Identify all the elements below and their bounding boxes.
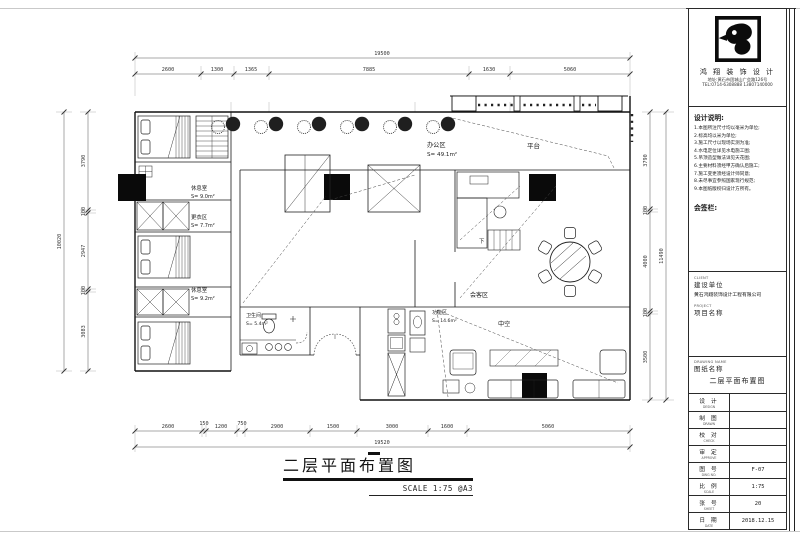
dim-label: 2600 — [162, 424, 175, 430]
room-label: 休息室 — [191, 184, 208, 192]
table-label-cell: 制 图DRAWN — [689, 411, 729, 428]
room-label: 卫生间 — [246, 312, 261, 319]
room-label: S= 9.0m² — [191, 194, 215, 200]
table-label-cell: 比 例SCALE — [689, 478, 729, 495]
note-line: 7.施工变更须经设计师同意; — [694, 171, 781, 179]
dim-label: 1500 — [327, 424, 340, 430]
stair-top-left — [196, 116, 228, 158]
dim-label: 5060 — [542, 424, 555, 430]
note-line: 9.本图纸版权归设计方所有。 — [694, 186, 781, 194]
table-value-cell — [729, 445, 786, 462]
room-label: S= 14.6m² — [432, 318, 457, 324]
note-line: 1.本图所注尺寸均以毫米为单位; — [694, 125, 781, 133]
dim-label: 750 — [237, 421, 246, 427]
room-label: S= 9.2m² — [191, 296, 215, 302]
drawing-name-label: 图纸名称 — [694, 364, 781, 373]
dim-label: 5060 — [564, 67, 577, 73]
dim-label: 4000 — [643, 255, 649, 268]
room-label: 功能区 — [432, 309, 447, 316]
room-label: 休息室 — [191, 286, 208, 294]
drawing-name-section: DRAWING NAME 图纸名称 二层平面布置图 — [689, 357, 786, 394]
sign-off-heading: 会签栏: — [694, 202, 781, 212]
dim-label: 100 — [81, 207, 87, 216]
note-line: 8.未尽事宜参照国家现行规范; — [694, 178, 781, 186]
bathroom-fixtures — [240, 314, 307, 354]
table-label-cell: 图 号DWG NO. — [689, 462, 729, 479]
plants-row — [212, 117, 456, 134]
table-value-cell: F-07 — [729, 462, 786, 479]
dim-label: 7885 — [363, 67, 376, 73]
room-label: S= 49.1m² — [427, 151, 457, 158]
dim-label: 1600 — [441, 424, 454, 430]
design-notes-section: 设计说明: 1.本图所注尺寸均以毫米为单位; 2.标高均以米为单位; 3.施工尺… — [689, 107, 786, 272]
client-value: 黄石鸿翔装饰设计工程有限公司 — [694, 291, 781, 298]
room-label: 中空 — [498, 320, 510, 328]
drawing-title-block: 二层平面布置图 SCALE 1:75 @A3 — [283, 452, 473, 496]
drawing-title: 二层平面布置图 — [283, 452, 473, 476]
scale-underline — [369, 495, 473, 496]
title-block-logo-section: 鸿 翔 装 饰 设 计 地址:黄石市团城山广会路126号 TEL:0714-63… — [689, 9, 786, 107]
dim-label: 1200 — [215, 424, 228, 430]
drawing-sheet: 19500 2600 1300 1365 7885 1630 5060 2600… — [0, 0, 800, 539]
dim-label: 2947 — [81, 245, 87, 258]
dim-label: 100 — [81, 286, 87, 295]
dim-label: 3000 — [386, 424, 399, 430]
table-value-cell — [729, 394, 786, 411]
dim-label: 2900 — [271, 424, 284, 430]
project-label: 项目名称 — [694, 308, 781, 317]
project-fields-section: CLIENT 建设单位 黄石鸿翔装饰设计工程有限公司 PROJECT 项目名称 — [689, 272, 786, 357]
scale-note: SCALE 1:75 @A3 — [283, 484, 473, 493]
title-block: 鸿 翔 装 饰 设 计 地址:黄石市团城山广会路126号 TEL:0714-63… — [688, 8, 787, 530]
table-value-cell — [729, 411, 786, 428]
note-line: 2.标高均以米为单位; — [694, 133, 781, 141]
table-label-cell: 审 定APPROVE — [689, 445, 729, 462]
room-label: 办公区 — [427, 141, 446, 149]
room-label: 下 — [479, 238, 485, 245]
company-phone: TEL:0714-6308888 13807140000 — [689, 82, 786, 87]
table-label-cell: 张 号SHEET — [689, 495, 729, 512]
room-label: 更衣区 — [191, 213, 208, 221]
room-labels: 休息室 S= 9.0m² 更衣区 S= 7.7m² 休息室 S= 9.2m² 办… — [191, 141, 540, 328]
beds — [138, 116, 190, 364]
table-label-cell: 日 期DATE — [689, 512, 729, 529]
table-label-cell: 校 对CHECK — [689, 428, 729, 445]
note-line: 5.吊顶造型做法详见天花图; — [694, 155, 781, 163]
table-value-cell: 1:75 — [729, 478, 786, 495]
terrace-railing — [450, 96, 632, 142]
notes-heading: 设计说明: — [694, 112, 781, 122]
company-name: 鸿 翔 装 饰 设 计 — [689, 67, 786, 77]
dim-label: 1630 — [483, 67, 496, 73]
dim-label: 10020 — [57, 234, 63, 250]
title-underline — [283, 478, 473, 481]
dim-label: 3790 — [643, 154, 649, 167]
table-value-cell — [729, 428, 786, 445]
dim-label: 100 — [643, 206, 649, 215]
dim-label: 2600 — [162, 67, 175, 73]
company-bird-logo-icon — [715, 16, 761, 62]
note-line: 3.施工尺寸以现场实测为准; — [694, 140, 781, 148]
room-label: S= 5.4m² — [246, 321, 268, 327]
round-dining-table — [537, 228, 602, 297]
client-label: 建设单位 — [694, 280, 781, 289]
table-value-cell: 20 — [729, 495, 786, 512]
room-label: 平台 — [527, 141, 540, 150]
dim-label: 19520 — [374, 440, 390, 446]
dim-label: 1365 — [245, 67, 258, 73]
note-line: 4.水电定位详见水电施工图; — [694, 148, 781, 156]
dim-label: 3500 — [643, 351, 649, 364]
dim-label: 11490 — [659, 248, 665, 264]
note-line: 6.主要材料须经甲方确认后施工; — [694, 163, 781, 171]
walls-medium — [135, 112, 630, 400]
dim-label: 3083 — [81, 325, 87, 338]
table-value-cell: 2018.12.15 — [729, 512, 786, 529]
drawing-name-value: 二层平面布置图 — [694, 376, 781, 386]
dim-label: 100 — [643, 308, 649, 317]
sheet-border-right — [789, 8, 795, 531]
center-closets — [285, 155, 420, 212]
dim-label: 3790 — [81, 155, 87, 168]
room-label: S= 7.7m² — [191, 223, 215, 229]
double-door — [314, 334, 356, 355]
dim-label: 19500 — [374, 51, 390, 57]
dimension-ticks — [62, 56, 669, 450]
title-block-table: 设 计DESIGN 制 图DRAWN 校 对CHECK 审 定APPROVE 图… — [689, 394, 786, 529]
table-label-cell: 设 计DESIGN — [689, 394, 729, 411]
kitchen-fixtures — [388, 309, 425, 396]
dim-label: 1300 — [211, 67, 224, 73]
dim-label: 150 — [199, 421, 208, 427]
room-label: 会客区 — [470, 291, 488, 299]
